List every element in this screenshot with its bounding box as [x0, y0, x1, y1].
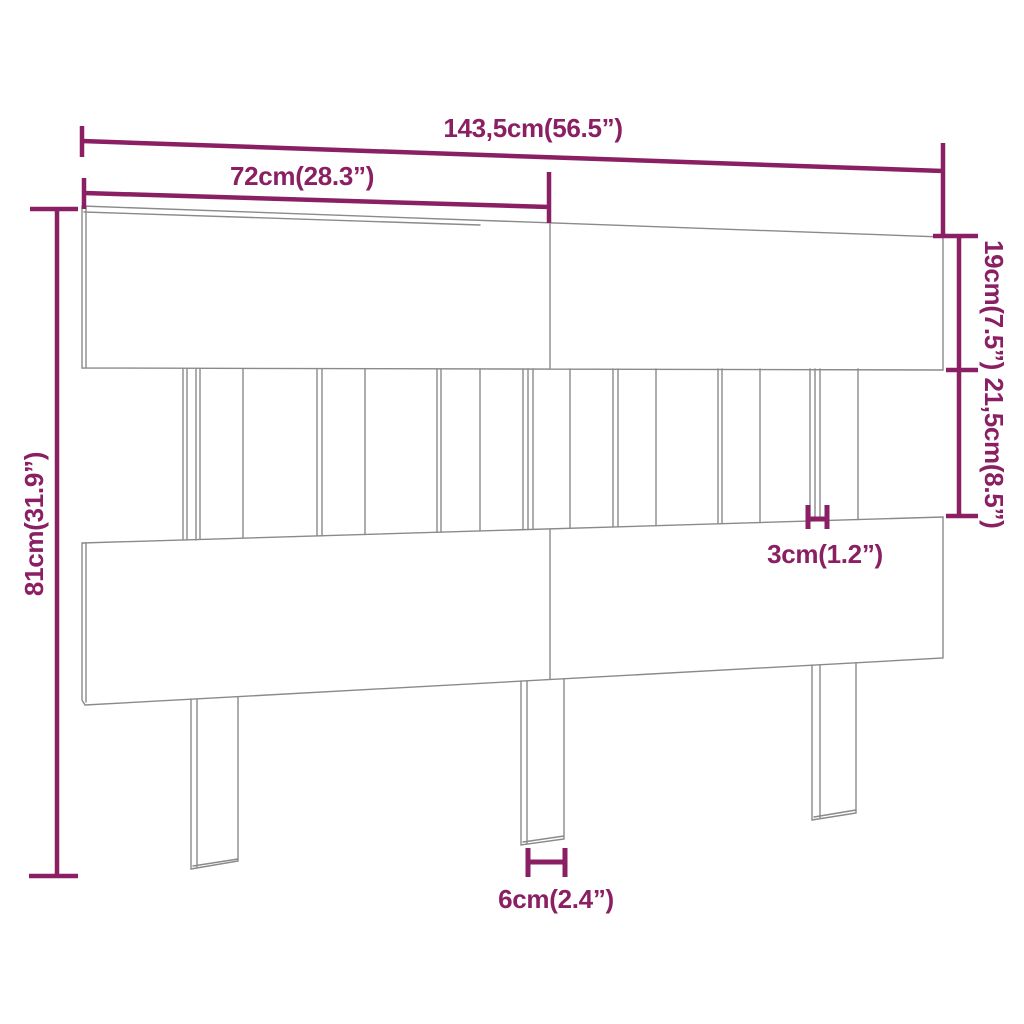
slat-width-label: 3cm(1.2”): [767, 541, 883, 567]
right-height-dimension-line: [933, 236, 978, 516]
slat-width-marker: [808, 505, 827, 529]
dimension-diagram: 143,5cm(56.5”) 72cm(28.3”) 19cm(7.5”) 21…: [0, 0, 1024, 1024]
upper-board-width-label: 72cm(28.3”): [230, 163, 374, 189]
top-board: [82, 206, 943, 370]
leg-width-label: 6cm(2.4”): [498, 886, 614, 912]
top-board-height-label: 19cm(7.5”): [981, 240, 1007, 370]
headboard-outline: [82, 206, 943, 869]
slat-section-height-label: 21,5cm(8.5”): [981, 377, 1007, 528]
total-width-label: 143,5cm(56.5”): [443, 115, 622, 141]
total-height-label: 81cm(31.9”): [21, 452, 47, 596]
headboard-line-drawing: [0, 0, 1024, 1024]
middle-leg: [521, 679, 564, 845]
slats: [183, 369, 858, 540]
left-leg: [191, 697, 238, 869]
leg-width-marker: [528, 848, 565, 877]
dimension-lines: [29, 126, 978, 877]
right-leg: [812, 663, 856, 820]
